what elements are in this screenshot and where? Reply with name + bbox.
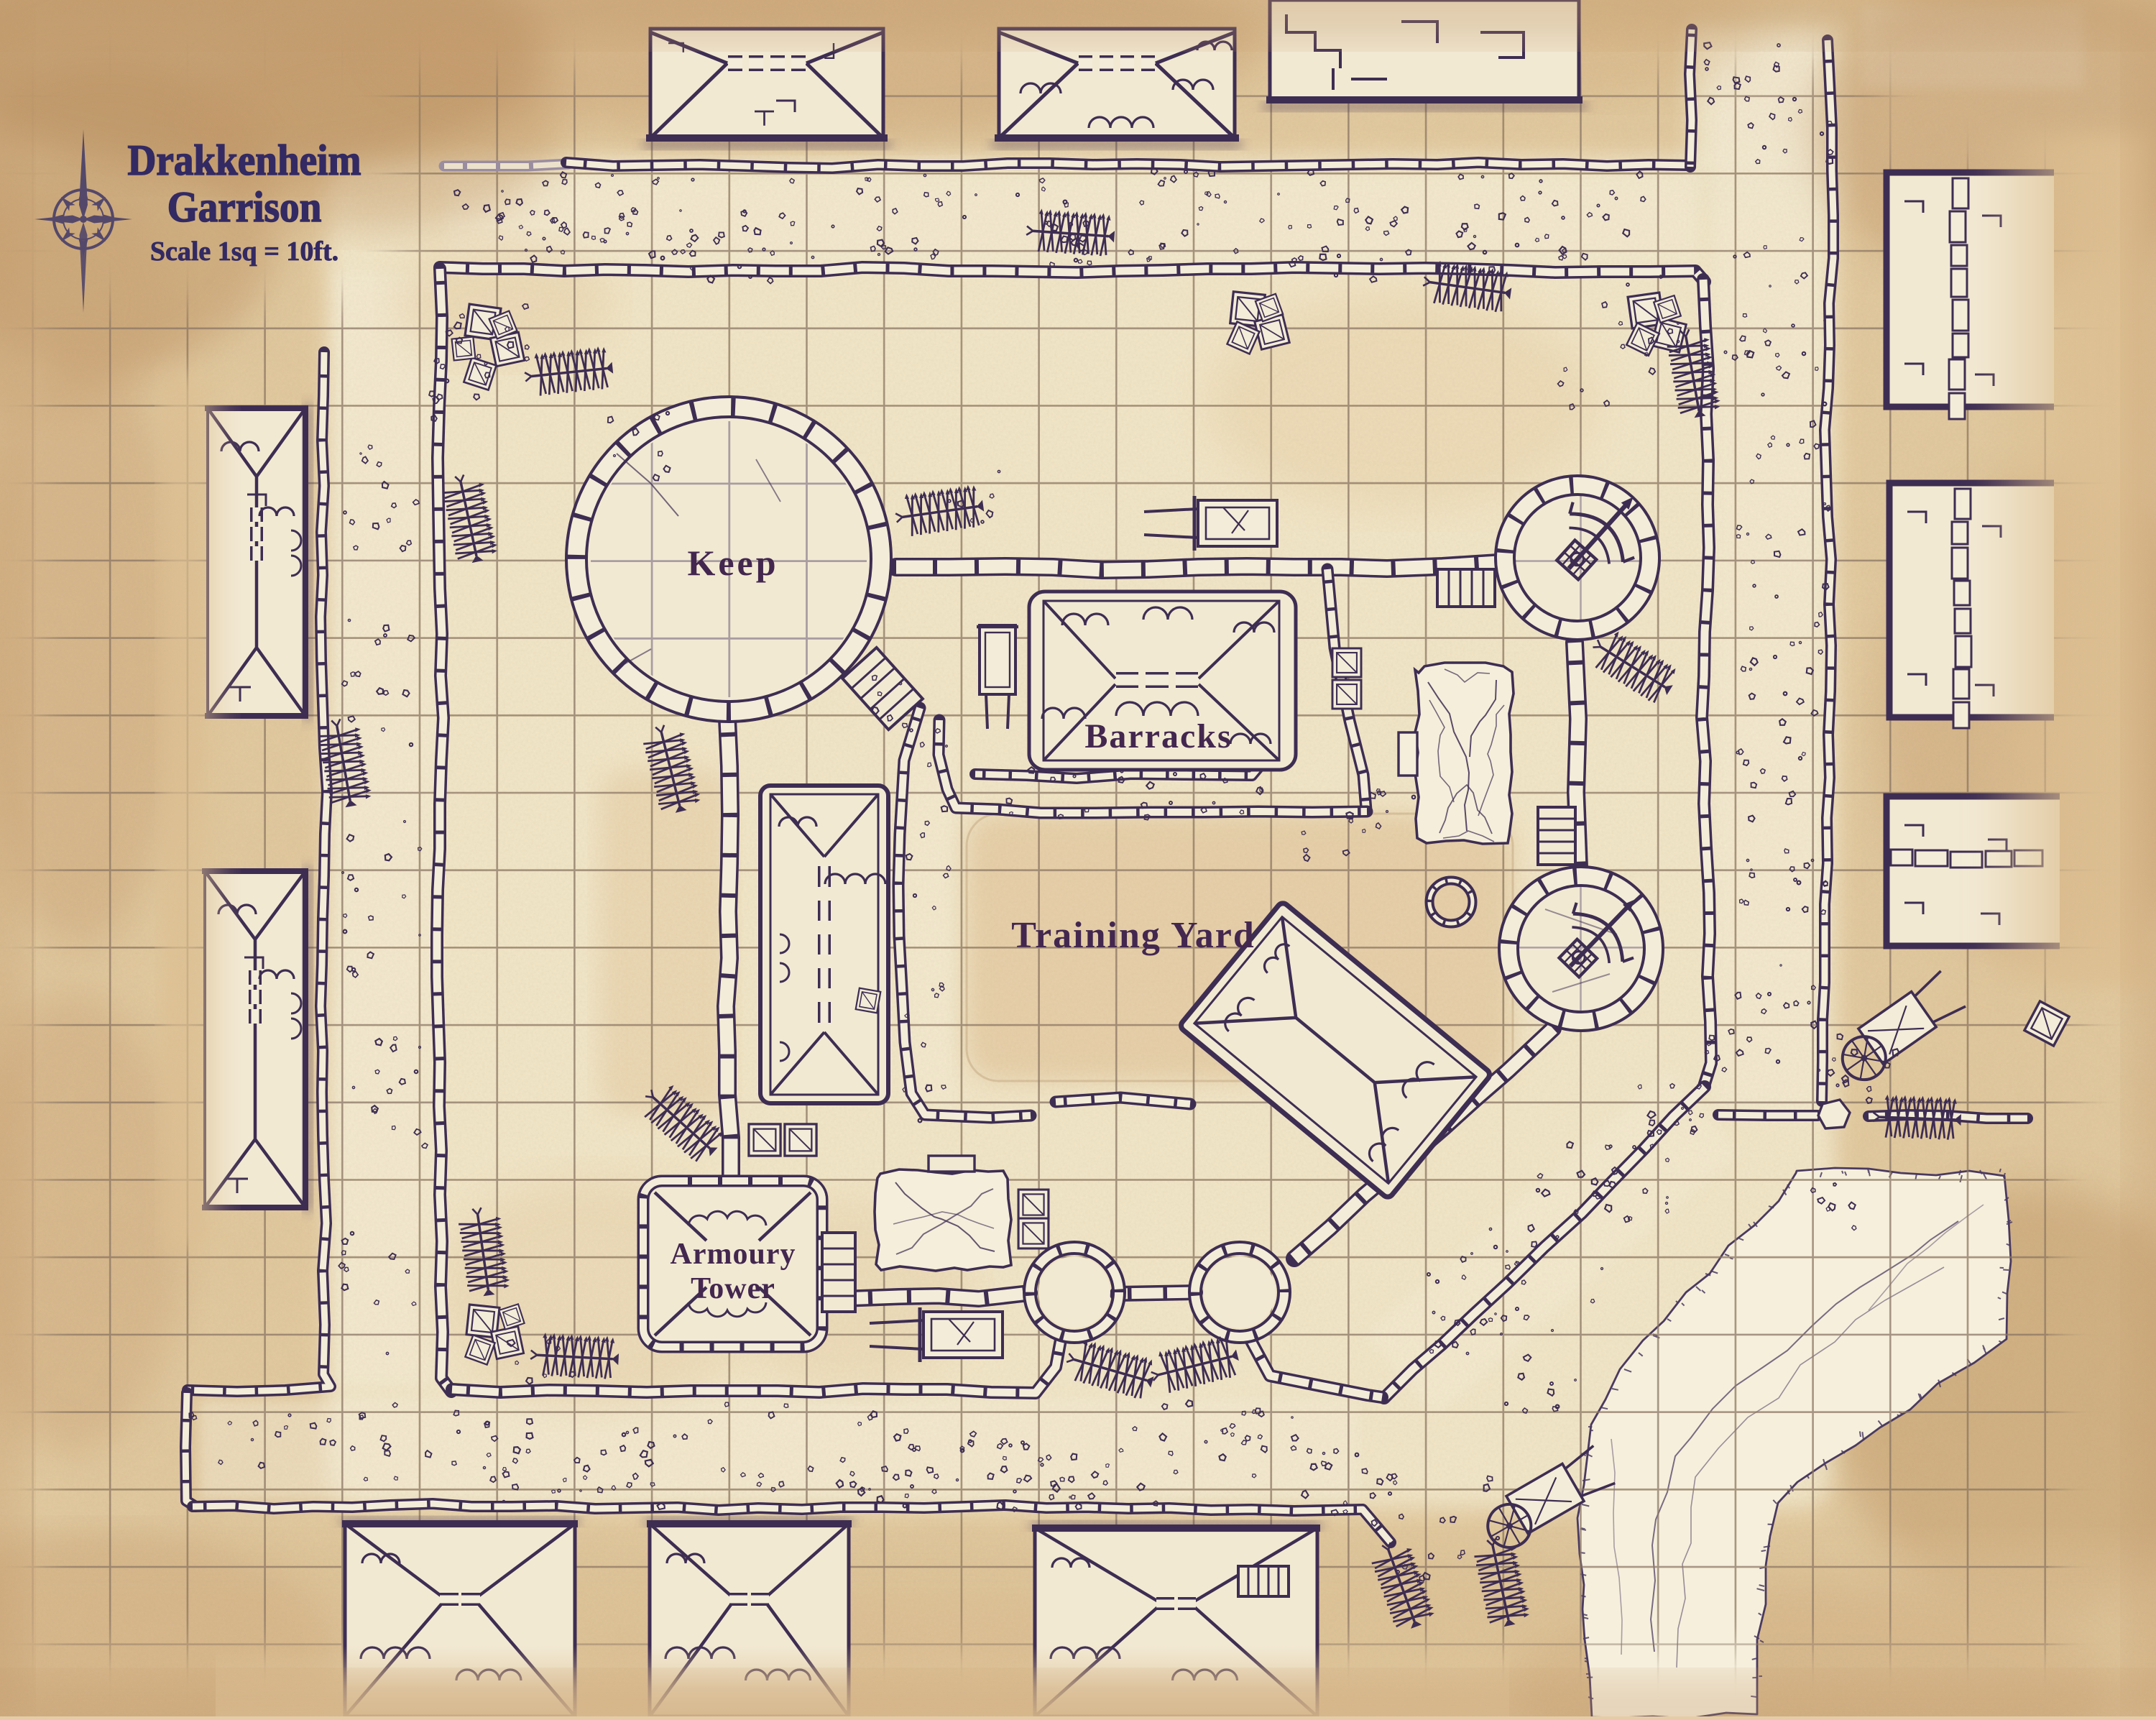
svg-text:Training Yard: Training Yard bbox=[1011, 915, 1256, 956]
svg-text:Barracks: Barracks bbox=[1084, 717, 1232, 755]
svg-text:Tower: Tower bbox=[691, 1272, 775, 1305]
svg-text:Drakkenheim: Drakkenheim bbox=[128, 137, 361, 185]
svg-text:Armoury: Armoury bbox=[671, 1238, 796, 1271]
svg-text:Scale 1sq = 10ft.: Scale 1sq = 10ft. bbox=[150, 236, 338, 267]
svg-text:Keep: Keep bbox=[687, 543, 778, 583]
svg-text:Garrison: Garrison bbox=[167, 184, 322, 231]
